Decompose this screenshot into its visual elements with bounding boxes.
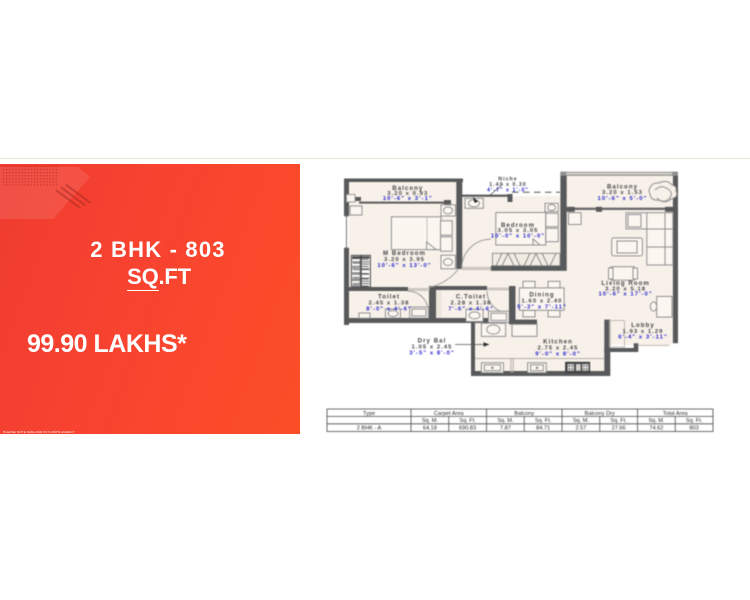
svg-text:Dining: Dining (529, 292, 554, 299)
svg-text:7'-6" x 4'-6": 7'-6" x 4'-6" (448, 307, 494, 313)
svg-text:84.71: 84.71 (536, 426, 550, 432)
svg-text:Sq. M.: Sq. M. (648, 418, 665, 424)
svg-text:10'-6" x 17'-0": 10'-6" x 17'-0" (598, 292, 652, 298)
svg-text:8'-0" x 4'-6": 8'-0" x 4'-6" (366, 307, 412, 313)
svg-text:C.Toilet: C.Toilet (456, 294, 486, 301)
svg-text:Carpet Area: Carpet Area (434, 411, 465, 417)
svg-text:3'-5" x 8'-0": 3'-5" x 8'-0" (409, 351, 455, 357)
svg-text:10'-6" x 3'-1": 10'-6" x 3'-1" (383, 196, 433, 202)
svg-text:5'-3" x 7'-11": 5'-3" x 7'-11" (517, 305, 567, 311)
svg-text:10'-0" x 10'-0": 10'-0" x 10'-0" (491, 233, 545, 239)
svg-text:10'-6" x 5'-0": 10'-6" x 5'-0" (598, 196, 648, 202)
svg-text:Type: Type (363, 411, 375, 417)
svg-text:6'-4" x 3'-11": 6'-4" x 3'-11" (618, 334, 668, 340)
svg-text:Sq. Ft.: Sq. Ft. (610, 418, 627, 424)
svg-text:Sq. Ft.: Sq. Ft. (535, 418, 552, 424)
svg-text:10'-6" x 13'-0": 10'-6" x 13'-0" (377, 263, 431, 269)
svg-text:2.57: 2.57 (575, 426, 586, 432)
svg-text:7.87: 7.87 (500, 426, 511, 432)
svg-text:M Bedroom: M Bedroom (383, 250, 426, 257)
svg-text:Kitchen: Kitchen (543, 339, 573, 346)
svg-text:Balcony Dry: Balcony Dry (585, 411, 615, 417)
svg-text:Balcony: Balcony (514, 411, 534, 417)
svg-text:Sq. M.: Sq. M. (422, 418, 439, 424)
svg-text:Sq. M.: Sq. M. (497, 418, 514, 424)
svg-text:Total Area: Total Area (663, 411, 689, 417)
svg-text:74.62: 74.62 (649, 426, 663, 432)
svg-text:690.83: 690.83 (459, 426, 476, 432)
svg-text:64.18: 64.18 (423, 426, 437, 432)
svg-text:Toilet: Toilet (378, 294, 400, 301)
svg-text:27.66: 27.66 (612, 426, 626, 432)
svg-text:4'-7" x 1'-0": 4'-7" x 1'-0" (487, 188, 529, 194)
svg-text:Sq. M.: Sq. M. (573, 418, 590, 424)
svg-text:803: 803 (689, 426, 698, 432)
svg-text:Sq. Ft.: Sq. Ft. (459, 418, 476, 424)
svg-text:Dry Bal: Dry Bal (418, 338, 447, 345)
svg-text:2 BHK - A: 2 BHK - A (357, 426, 382, 432)
svg-text:9'-0" x 8'-0": 9'-0" x 8'-0" (535, 352, 581, 358)
svg-text:Sq. Ft.: Sq. Ft. (686, 418, 703, 424)
